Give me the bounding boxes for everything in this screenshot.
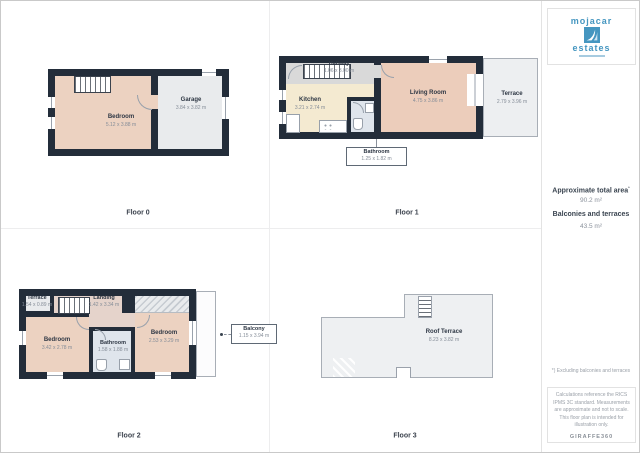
window <box>19 331 26 345</box>
floor1-plan: Hallway 1.06 x 3.00 m Kitchen 3.21 x 2.7… <box>279 56 483 139</box>
sink <box>365 103 374 113</box>
floor1-title: Floor 1 <box>395 210 418 217</box>
floor0-title: Floor 0 <box>126 210 149 217</box>
terrace-door-window <box>467 74 483 106</box>
sail-wave-icon <box>584 27 600 43</box>
floor0-door-gap <box>151 95 158 109</box>
floor1-kitchen-label: Kitchen 3.21 x 2.74 m <box>295 97 325 111</box>
balcony-door-window <box>189 321 196 345</box>
window <box>279 112 286 124</box>
brand-logo-box: mojacar estates <box>547 8 636 65</box>
floor1-living-door-gap <box>374 65 381 78</box>
callout-dash <box>224 334 231 335</box>
roof-stripe-band <box>135 296 189 313</box>
floor2-terrace-label: Terrace 1.54 x 0.89 m <box>22 295 52 309</box>
balconies-value: 43.5 m² <box>541 223 640 230</box>
stairs-icon <box>74 76 111 93</box>
brand-rule <box>579 55 605 57</box>
window <box>202 69 216 76</box>
floor0-plan: Bedroom 5.12 x 3.88 m Garage 3.84 x 3.82… <box>48 69 229 156</box>
floor3-title: Floor 3 <box>393 433 416 440</box>
stove-icon <box>322 122 333 130</box>
floor3-roof-terrace-label: Roof Terrace 8.23 x 3.82 m <box>426 329 463 343</box>
floor2-balcony-callout: Balcony 1.15 x 3.94 m <box>231 324 277 344</box>
brand-logo: mojacar estates <box>548 9 635 64</box>
floor2-bathroom-label: Bathroom 1.58 x 1.88 m <box>98 340 128 354</box>
brand-name-bottom: estates <box>572 44 610 53</box>
floor0-bedroom-label: Bedroom 5.12 x 3.88 m <box>106 114 136 128</box>
callout-leader <box>376 139 377 147</box>
window <box>48 97 55 108</box>
floor2-plan: Terrace 1.54 x 0.89 m Landing 1.42 x 3.3… <box>19 289 196 379</box>
roof-notch <box>396 367 411 378</box>
floor2-corridor <box>89 313 135 327</box>
total-area-label: Approximate total area* <box>541 185 640 194</box>
grid-hline-mid <box>1 228 541 229</box>
floorplan-sheet: Bedroom 5.12 x 3.88 m Garage 3.84 x 3.82… <box>0 0 640 453</box>
floor1-living-label: Living Room 4.75 x 3.86 m <box>410 90 446 104</box>
giraffe360-logo: GIRAFFE360 <box>548 434 635 440</box>
floor1-terrace: Terrace 2.79 x 3.96 m <box>483 58 538 137</box>
toilet <box>353 118 363 130</box>
window <box>279 90 286 100</box>
floor0-garage-room <box>158 76 222 149</box>
floor1-bathroom-callout: Bathroom 1.25 x 1.82 m <box>346 147 407 166</box>
window <box>48 117 55 129</box>
grid-vline-mid <box>269 1 270 453</box>
floor0-garage-label: Garage 3.84 x 3.82 m <box>176 97 206 111</box>
stairs-icon <box>418 296 432 318</box>
callout-dot <box>220 333 223 336</box>
floor1-terrace-label: Terrace 2.79 x 3.96 m <box>497 91 527 105</box>
brand-name-top: mojacar <box>571 17 613 26</box>
toilet <box>96 359 107 371</box>
total-area-value: 90.2 m² <box>541 197 640 204</box>
floor2-bedroom-right-label: Bedroom 2.53 x 3.29 m <box>149 330 179 344</box>
window <box>222 97 229 119</box>
sink <box>119 359 130 370</box>
stairs-icon <box>58 297 90 314</box>
window <box>47 372 63 379</box>
floor1-hallway-label: Hallway 1.06 x 3.00 m <box>324 61 354 75</box>
kitchen-unit <box>286 114 300 133</box>
disclaimer-box: Calculations reference the RICS IPMS 3C … <box>547 387 636 443</box>
window <box>429 56 447 63</box>
roof-hatch-decoration <box>333 358 355 377</box>
window <box>155 372 171 379</box>
disclaimer-text: Calculations reference the RICS IPMS 3C … <box>548 388 635 432</box>
balconies-label: Balconies and terraces <box>541 211 640 218</box>
area-footnote: *) Excluding balconies and terraces <box>541 368 640 374</box>
floor2-landing-label: Landing 1.42 x 3.34 m <box>89 295 119 309</box>
floor2-balcony-strip <box>196 291 216 377</box>
floor2-bedroom-left-label: Bedroom 3.42 x 2.78 m <box>42 337 72 351</box>
floor2-title: Floor 2 <box>117 433 140 440</box>
